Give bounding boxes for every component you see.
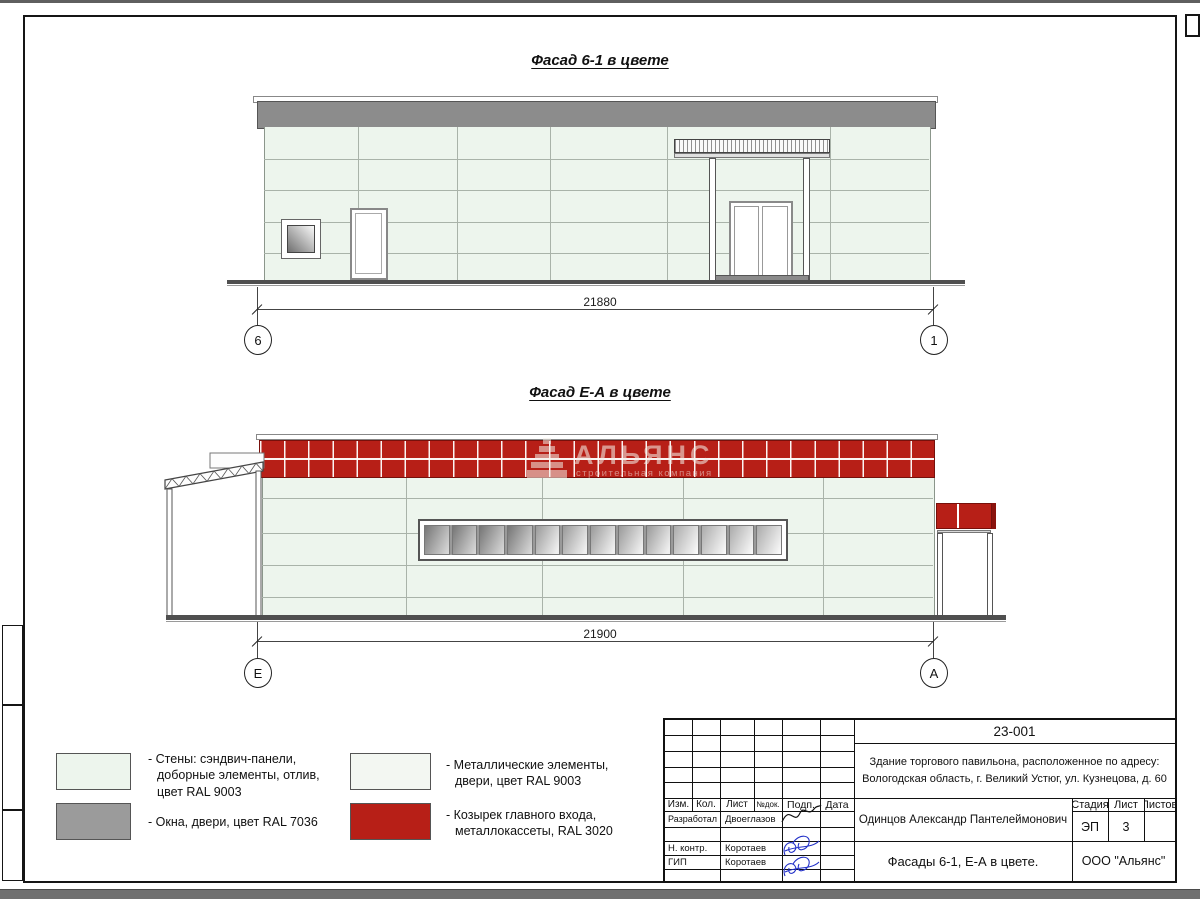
tb-line	[665, 869, 854, 870]
window-pane	[701, 525, 727, 555]
signature-black	[780, 800, 822, 828]
tb-name-ncontr: Коротаев	[722, 841, 785, 855]
axis-bubble-A: А	[920, 658, 948, 688]
tb-address: Здание торгового павильона, расположенно…	[857, 743, 1172, 798]
panel-joint	[823, 478, 824, 617]
right-structure-post	[937, 533, 943, 618]
bottom-edge-bar	[0, 889, 1200, 899]
facade2-title: Фасад Е-А в цвете	[440, 384, 760, 401]
right-canopy-divider	[957, 504, 959, 528]
tb-company: ООО "Альянс"	[1072, 841, 1175, 881]
axis-bubble-1: 1	[920, 325, 948, 355]
canopy-post	[803, 158, 810, 282]
tb-line	[665, 782, 854, 783]
legend-label-windows: - Окна, двери, цвет RAL 7036	[148, 814, 377, 830]
facade1-dimension: 21880	[540, 295, 660, 309]
margin-box-3	[2, 810, 23, 881]
dimension-line	[257, 641, 934, 642]
legend-swatch-walls	[56, 753, 131, 790]
axis-bubble-E: Е	[244, 658, 272, 688]
facade1-parapet-band	[257, 101, 936, 129]
legend-label-metal: - Металлические элементы, двери, цвет RA…	[446, 757, 665, 790]
tb-stage-value: ЭП	[1072, 812, 1108, 841]
watermark-name: АЛЬЯНС	[574, 440, 714, 471]
window-pane	[729, 525, 755, 555]
facade1-ground-line	[227, 280, 965, 284]
entrance-door-leaf	[762, 206, 788, 277]
facade2-dimension: 21900	[540, 627, 660, 641]
tb-col-ndok: №док.	[754, 798, 782, 811]
window-pane	[424, 525, 450, 555]
tb-author: Одинцов Александр Пантелеймонович	[854, 798, 1072, 841]
panel-joint	[830, 127, 831, 281]
window-pane	[507, 525, 533, 555]
margin-box-2	[2, 705, 23, 810]
tb-doc-title: Фасады 6-1, Е-А в цвете.	[854, 841, 1072, 881]
right-structure-beam	[937, 530, 991, 533]
tb-address-line1: Здание торгового павильона, расположенно…	[869, 754, 1159, 771]
legend-swatch-metal	[350, 753, 431, 790]
window-pane	[618, 525, 644, 555]
facade1-title: Фасад 6-1 в цвете	[440, 52, 760, 69]
window-pane	[479, 525, 505, 555]
panel-line	[262, 498, 933, 499]
legend-swatch-windows	[56, 803, 131, 840]
signature-blue-2	[779, 854, 821, 880]
tb-address-line2: Вологодская область, г. Великий Устюг, у…	[862, 771, 1167, 788]
window-pane	[756, 525, 782, 555]
tb-sheets-total	[1144, 812, 1175, 841]
facade1-canopy	[674, 139, 830, 153]
tb-line	[665, 735, 854, 736]
tb-role-ncontr: Н. контр.	[665, 841, 723, 855]
facade1-window-glass	[287, 225, 315, 253]
tb-sheet-number: 3	[1108, 812, 1144, 841]
tb-line	[665, 751, 854, 752]
facade2-right-canopy	[936, 503, 992, 529]
facade2-ribbon-window-panes	[424, 525, 782, 555]
panel-joint	[406, 478, 407, 617]
tb-listov-header: Листов	[1144, 798, 1175, 812]
right-canopy-edge	[992, 503, 996, 529]
panel-joint	[457, 127, 458, 281]
tb-line	[665, 767, 854, 768]
axis-bubble-6: 6	[244, 325, 272, 355]
tb-col-list: Лист	[720, 798, 754, 811]
tb-line	[665, 827, 854, 828]
corner-box	[1185, 14, 1200, 37]
drawing-sheet: Фасад 6-1 в цвете 21880 6 1 Фасад Е-А в …	[0, 0, 1200, 900]
facade2-ground-line	[166, 615, 1006, 620]
window-pane	[646, 525, 672, 555]
top-edge-bar	[0, 0, 1200, 3]
facade1-ground-shadow	[227, 285, 965, 286]
axis-label: А	[930, 666, 939, 681]
window-pane	[562, 525, 588, 555]
axis-label: 6	[254, 333, 261, 348]
facade2-left-canopy	[160, 452, 272, 622]
facade2-ground-shadow	[166, 621, 1006, 622]
right-structure-post	[987, 533, 993, 618]
margin-box-1	[2, 625, 23, 705]
window-pane	[673, 525, 699, 555]
title-block: Изм. Кол. Лист №док. Подп. Дата Разработ…	[663, 718, 1177, 883]
tb-col-kol: Кол.	[692, 798, 720, 811]
window-pane	[452, 525, 478, 555]
tb-list-header: Лист	[1108, 798, 1144, 812]
window-pane	[590, 525, 616, 555]
dimension-line	[257, 309, 934, 310]
entrance-door-leaf	[734, 206, 759, 277]
axis-label: Е	[254, 666, 263, 681]
facade1-side-door-leaf	[355, 213, 382, 274]
window-pane	[535, 525, 561, 555]
tb-role-gip: ГИП	[665, 855, 723, 869]
tb-name-gip: Коротаев	[722, 855, 785, 869]
tb-col-izm: Изм.	[665, 798, 692, 811]
panel-joint	[550, 127, 551, 281]
tb-stage-header: Стадия	[1072, 798, 1108, 812]
legend-label-walls: - Стены: сэндвич-панели, доборные элемен…	[148, 751, 352, 800]
panel-joint	[667, 127, 668, 281]
tb-col-data: Дата	[820, 798, 854, 811]
canopy-post	[709, 158, 716, 282]
alliance-logo-icon	[525, 436, 569, 482]
tb-role-developer: Разработал	[665, 811, 723, 827]
panel-line	[262, 565, 933, 566]
tb-name-developer: Двоеглазов	[722, 811, 785, 827]
tb-project-code: 23-001	[854, 720, 1175, 743]
legend-label-canopy: - Козырек главного входа, металлокассеты…	[446, 807, 665, 840]
axis-label: 1	[930, 333, 937, 348]
panel-line	[262, 597, 933, 598]
legend-swatch-canopy	[350, 803, 431, 840]
